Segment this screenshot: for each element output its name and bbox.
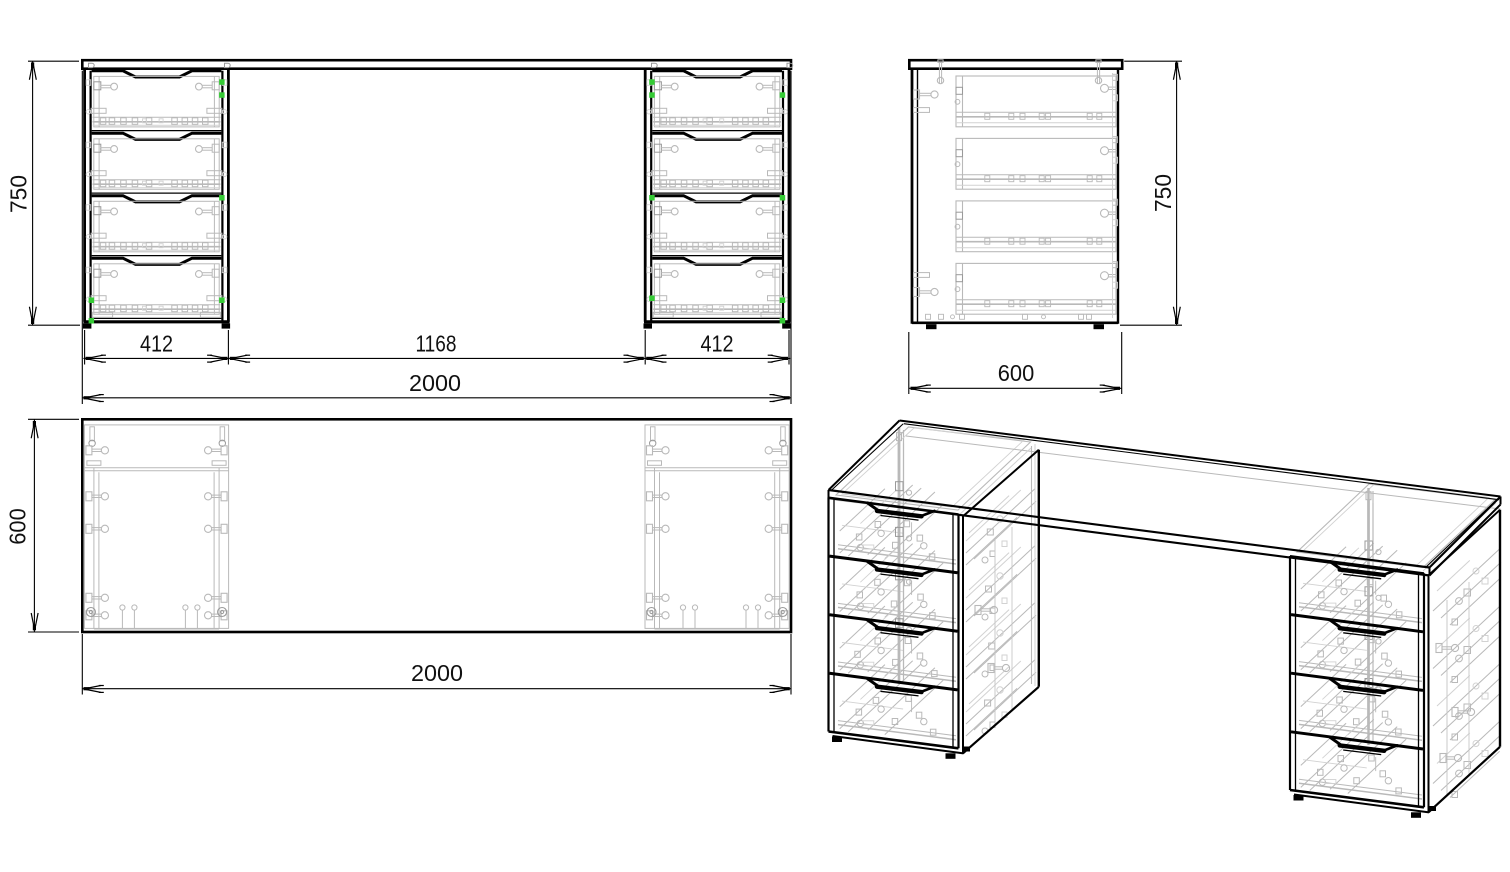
svg-text:412: 412: [140, 331, 173, 357]
svg-text:750: 750: [6, 175, 32, 213]
svg-text:2000: 2000: [411, 660, 463, 686]
svg-text:600: 600: [5, 508, 31, 545]
svg-text:600: 600: [998, 360, 1035, 386]
svg-text:1168: 1168: [416, 331, 457, 357]
svg-text:412: 412: [701, 331, 734, 357]
svg-text:750: 750: [1150, 174, 1176, 212]
svg-text:2000: 2000: [409, 370, 461, 396]
